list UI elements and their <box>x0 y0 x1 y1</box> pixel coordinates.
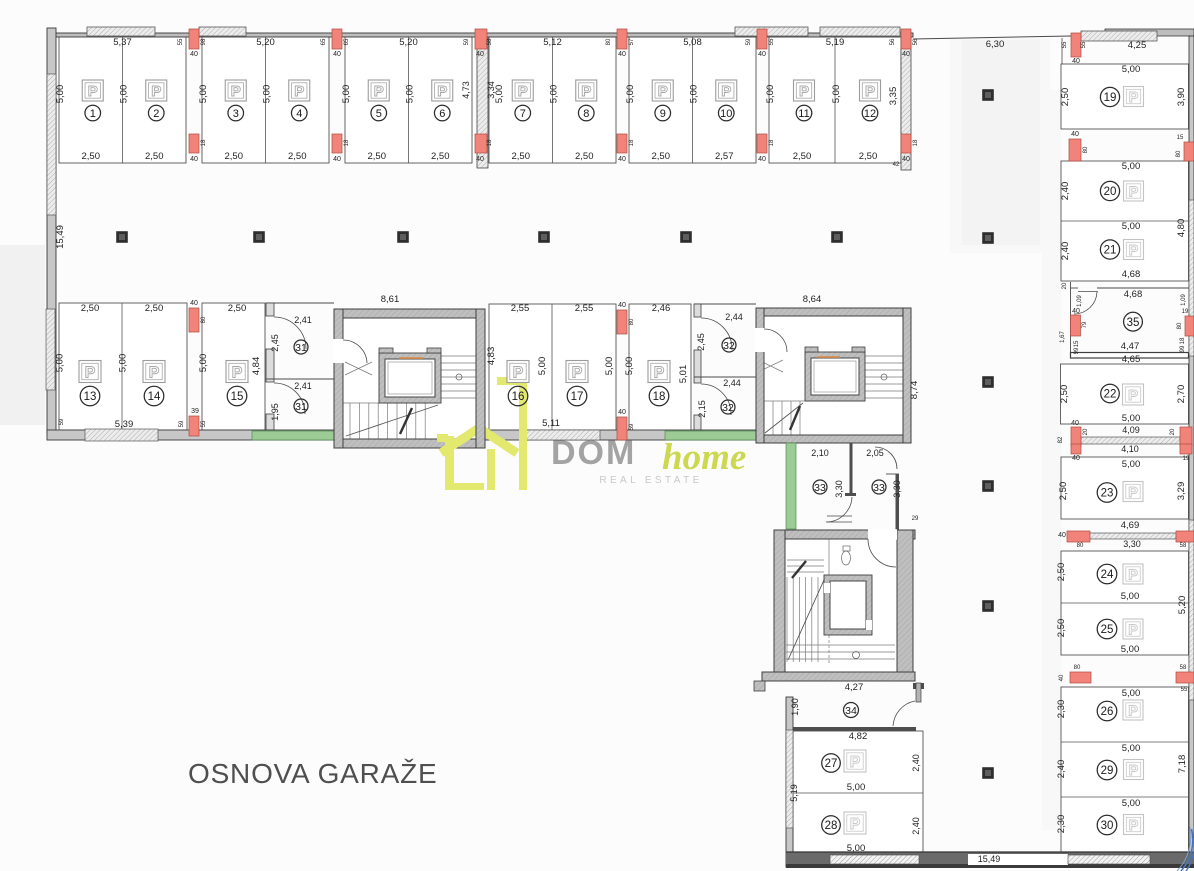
svg-text:4,10: 4,10 <box>1121 444 1139 454</box>
svg-text:55: 55 <box>1181 687 1188 693</box>
svg-text:5,37: 5,37 <box>113 37 132 48</box>
svg-text:4,80: 4,80 <box>1176 219 1187 238</box>
svg-text:P: P <box>1128 567 1138 583</box>
svg-text:P: P <box>85 364 96 381</box>
svg-text:56: 56 <box>890 38 896 45</box>
svg-text:9: 9 <box>660 108 666 120</box>
svg-text:2,50: 2,50 <box>431 151 450 162</box>
svg-text:2: 2 <box>153 108 159 120</box>
svg-text:2,45: 2,45 <box>696 333 706 351</box>
svg-text:2,50: 2,50 <box>512 151 531 162</box>
svg-text:26: 26 <box>1101 706 1114 718</box>
svg-text:12: 12 <box>864 108 876 120</box>
svg-text:4,27: 4,27 <box>845 682 864 693</box>
svg-text:5,00: 5,00 <box>847 782 866 793</box>
svg-text:6: 6 <box>439 108 445 120</box>
svg-text:20: 20 <box>1062 282 1068 289</box>
svg-text:P: P <box>850 754 861 771</box>
svg-text:P: P <box>654 364 665 381</box>
svg-text:2,41: 2,41 <box>294 381 312 391</box>
svg-text:3,90: 3,90 <box>1176 88 1187 107</box>
svg-text:55: 55 <box>1062 41 1068 48</box>
svg-text:1,95: 1,95 <box>270 403 280 421</box>
svg-text:5,00: 5,00 <box>847 843 866 854</box>
svg-text:5,00: 5,00 <box>341 85 352 104</box>
svg-text:2,50: 2,50 <box>793 151 812 162</box>
svg-text:P: P <box>518 83 528 100</box>
svg-text:24: 24 <box>1101 569 1114 581</box>
svg-text:3,30: 3,30 <box>834 480 844 498</box>
svg-text:2,50: 2,50 <box>652 151 671 162</box>
svg-text:2,40: 2,40 <box>911 817 921 835</box>
svg-text:40: 40 <box>190 156 198 163</box>
svg-text:55: 55 <box>769 38 775 45</box>
svg-text:2,50: 2,50 <box>228 303 247 314</box>
svg-text:15: 15 <box>231 391 244 403</box>
svg-text:5,00: 5,00 <box>405 85 416 104</box>
svg-text:55: 55 <box>201 420 207 427</box>
svg-text:5,00: 5,00 <box>1122 413 1141 424</box>
svg-text:80: 80 <box>1176 150 1182 157</box>
svg-text:40: 40 <box>1071 420 1079 427</box>
svg-text:40: 40 <box>902 51 910 58</box>
svg-text:5,00: 5,00 <box>198 85 209 104</box>
svg-text:80: 80 <box>629 318 635 325</box>
svg-text:5,00: 5,00 <box>1121 591 1140 602</box>
svg-text:P: P <box>721 83 731 100</box>
svg-text:17: 17 <box>571 391 584 403</box>
svg-text:5,00: 5,00 <box>831 85 842 104</box>
svg-text:40: 40 <box>333 156 341 163</box>
svg-text:2,50: 2,50 <box>1056 619 1067 638</box>
svg-text:56: 56 <box>913 38 919 45</box>
svg-text:5,00: 5,00 <box>765 85 776 104</box>
svg-text:32: 32 <box>722 402 734 414</box>
svg-text:40: 40 <box>190 51 198 58</box>
svg-text:P: P <box>437 83 447 100</box>
svg-text:4,68: 4,68 <box>1122 269 1141 280</box>
svg-text:5,00: 5,00 <box>604 357 615 376</box>
svg-text:4: 4 <box>296 108 302 120</box>
svg-text:13: 13 <box>84 391 97 403</box>
svg-text:5,39: 5,39 <box>115 419 134 430</box>
svg-text:2,05: 2,05 <box>866 448 884 458</box>
svg-text:5,00: 5,00 <box>625 85 636 104</box>
svg-text:55: 55 <box>178 38 184 45</box>
svg-text:5,00: 5,00 <box>1122 798 1141 809</box>
svg-text:5,00: 5,00 <box>1122 221 1141 232</box>
svg-text:2,55: 2,55 <box>575 303 594 314</box>
svg-text:P: P <box>1129 184 1139 200</box>
svg-text:4,84: 4,84 <box>251 357 262 376</box>
svg-text:P: P <box>1128 622 1138 638</box>
svg-text:29: 29 <box>1101 765 1114 777</box>
svg-text:2,57: 2,57 <box>715 151 734 162</box>
svg-text:5,00: 5,00 <box>1122 688 1141 699</box>
svg-text:2,50: 2,50 <box>225 151 244 162</box>
svg-text:2,70: 2,70 <box>1176 385 1187 404</box>
svg-text:5,00: 5,00 <box>118 354 129 373</box>
svg-text:27: 27 <box>825 758 838 770</box>
svg-text:18: 18 <box>1180 337 1186 344</box>
svg-text:P: P <box>1128 387 1138 404</box>
svg-text:31: 31 <box>295 342 307 354</box>
svg-text:5,01: 5,01 <box>678 365 689 384</box>
svg-text:28: 28 <box>825 820 838 832</box>
svg-text:2,50: 2,50 <box>82 151 101 162</box>
svg-text:7,18: 7,18 <box>1177 755 1188 774</box>
svg-text:80: 80 <box>606 38 612 45</box>
svg-text:40: 40 <box>618 51 626 58</box>
svg-text:15: 15 <box>1074 340 1080 347</box>
svg-text:P: P <box>1129 763 1139 779</box>
svg-text:79: 79 <box>1082 321 1088 328</box>
svg-text:2,50: 2,50 <box>145 151 164 162</box>
svg-text:32: 32 <box>723 340 735 352</box>
svg-text:5,00: 5,00 <box>262 85 273 104</box>
svg-text:5,12: 5,12 <box>543 37 562 48</box>
svg-text:5,08: 5,08 <box>683 37 702 48</box>
svg-text:15: 15 <box>1177 135 1184 141</box>
svg-text:P: P <box>1129 818 1139 834</box>
svg-text:P: P <box>1129 90 1139 106</box>
svg-text:18: 18 <box>201 139 207 146</box>
svg-text:5,00: 5,00 <box>1122 161 1141 172</box>
svg-text:3: 3 <box>233 108 239 120</box>
svg-text:58: 58 <box>1180 665 1187 671</box>
svg-text:1,09: 1,09 <box>1077 295 1083 307</box>
svg-text:4,25: 4,25 <box>1128 40 1147 51</box>
svg-text:P: P <box>581 83 591 100</box>
svg-text:98: 98 <box>201 38 207 45</box>
svg-text:18: 18 <box>769 139 775 146</box>
svg-text:35: 35 <box>1127 317 1140 329</box>
svg-text:5,00: 5,00 <box>119 85 130 104</box>
svg-text:P: P <box>232 364 243 381</box>
svg-text:18: 18 <box>913 139 919 146</box>
svg-text:40: 40 <box>758 51 766 58</box>
svg-text:5,00: 5,00 <box>1122 459 1141 470</box>
svg-text:5,00: 5,00 <box>55 85 66 104</box>
svg-text:42: 42 <box>893 162 900 168</box>
svg-text:1,90: 1,90 <box>790 698 800 716</box>
svg-text:59: 59 <box>59 418 65 425</box>
svg-text:P: P <box>799 83 809 100</box>
svg-text:58: 58 <box>1180 543 1187 549</box>
svg-text:5: 5 <box>376 108 382 120</box>
svg-text:18: 18 <box>653 391 666 403</box>
svg-text:4,82: 4,82 <box>849 731 868 742</box>
svg-text:40: 40 <box>476 51 484 58</box>
svg-text:33: 33 <box>873 482 885 494</box>
svg-text:31: 31 <box>295 401 307 413</box>
svg-text:REAL ESTATE: REAL ESTATE <box>599 475 702 486</box>
svg-text:2,50: 2,50 <box>1059 385 1070 404</box>
svg-text:15,49: 15,49 <box>55 225 66 249</box>
svg-text:1: 1 <box>90 108 96 120</box>
svg-text:4,65: 4,65 <box>1122 354 1141 365</box>
svg-text:P: P <box>294 83 304 100</box>
svg-text:5,00: 5,00 <box>198 354 209 373</box>
svg-text:23: 23 <box>1101 488 1114 500</box>
svg-text:25: 25 <box>1101 624 1114 636</box>
svg-text:P: P <box>151 83 161 100</box>
svg-text:40: 40 <box>1072 455 1080 462</box>
svg-text:2,44: 2,44 <box>725 312 743 322</box>
svg-text:8: 8 <box>583 108 589 120</box>
svg-text:5,00: 5,00 <box>624 357 635 376</box>
svg-text:22: 22 <box>1104 389 1117 401</box>
svg-text:5,20: 5,20 <box>1177 596 1188 615</box>
svg-text:P: P <box>88 83 98 100</box>
svg-text:OSNOVA GARAŽE: OSNOVA GARAŽE <box>188 758 438 789</box>
svg-text:59: 59 <box>746 38 752 45</box>
svg-text:59: 59 <box>179 420 185 427</box>
svg-text:40: 40 <box>1059 674 1065 681</box>
svg-text:P: P <box>658 83 668 100</box>
svg-text:2,40: 2,40 <box>1056 760 1067 779</box>
svg-text:80: 80 <box>1177 322 1183 329</box>
svg-text:2,50: 2,50 <box>81 303 100 314</box>
svg-text:18: 18 <box>629 139 635 146</box>
svg-text:3,30: 3,30 <box>892 480 902 498</box>
svg-text:2,50: 2,50 <box>145 303 164 314</box>
svg-text:99: 99 <box>1180 345 1186 352</box>
svg-text:40: 40 <box>618 409 626 416</box>
svg-text:2,10: 2,10 <box>811 448 829 458</box>
svg-text:2,50: 2,50 <box>859 151 878 162</box>
svg-text:10: 10 <box>720 108 732 120</box>
svg-text:80: 80 <box>1074 665 1081 671</box>
svg-text:2,30: 2,30 <box>1056 700 1067 719</box>
svg-text:18: 18 <box>487 139 493 146</box>
svg-text:5,20: 5,20 <box>256 37 275 48</box>
svg-text:30: 30 <box>1101 820 1114 832</box>
svg-text:2,50: 2,50 <box>575 151 594 162</box>
svg-text:5,00: 5,00 <box>1121 644 1140 655</box>
svg-text:40: 40 <box>476 156 484 163</box>
svg-text:P: P <box>850 816 861 833</box>
svg-text:2,41: 2,41 <box>294 315 312 325</box>
svg-text:3,35: 3,35 <box>888 87 899 106</box>
svg-text:59: 59 <box>629 423 635 430</box>
svg-text:20: 20 <box>1170 428 1176 435</box>
svg-text:4,68: 4,68 <box>1124 289 1143 300</box>
svg-text:2,44: 2,44 <box>723 378 741 388</box>
svg-text:4,83: 4,83 <box>486 347 497 366</box>
svg-text:20: 20 <box>1083 428 1089 435</box>
svg-text:40: 40 <box>758 156 766 163</box>
svg-text:40: 40 <box>1071 131 1079 138</box>
svg-text:2,50: 2,50 <box>368 151 387 162</box>
svg-text:40: 40 <box>333 51 341 58</box>
svg-text:8,64: 8,64 <box>803 294 822 305</box>
svg-text:80: 80 <box>1077 543 1084 549</box>
svg-text:5,00: 5,00 <box>1122 743 1141 754</box>
svg-text:11: 11 <box>798 108 809 120</box>
svg-text:40: 40 <box>618 302 626 309</box>
svg-text:80: 80 <box>201 316 207 323</box>
svg-text:40: 40 <box>902 156 910 163</box>
svg-text:P: P <box>572 364 583 381</box>
svg-text:4,69: 4,69 <box>1121 520 1140 531</box>
svg-text:80: 80 <box>1083 146 1089 153</box>
svg-text:18: 18 <box>344 139 350 146</box>
svg-text:2,50: 2,50 <box>1058 482 1069 501</box>
svg-text:99: 99 <box>1074 347 1080 354</box>
svg-text:19: 19 <box>1183 456 1190 462</box>
svg-text:2,50: 2,50 <box>1056 563 1067 582</box>
svg-text:5,00: 5,00 <box>537 357 548 376</box>
svg-text:P: P <box>374 83 384 100</box>
svg-text:40: 40 <box>190 300 198 307</box>
svg-text:home: home <box>662 437 746 478</box>
svg-text:5,00: 5,00 <box>1122 64 1141 75</box>
svg-text:2,40: 2,40 <box>1060 182 1071 201</box>
svg-text:5,00: 5,00 <box>55 354 66 373</box>
svg-text:P: P <box>1128 485 1138 501</box>
svg-text:4,47: 4,47 <box>1121 341 1140 352</box>
svg-text:3,34: 3,34 <box>486 81 496 99</box>
svg-text:14: 14 <box>148 391 161 403</box>
svg-text:1,67: 1,67 <box>1060 331 1066 343</box>
svg-text:P: P <box>149 364 160 381</box>
svg-text:57: 57 <box>629 38 635 45</box>
svg-text:7: 7 <box>520 108 526 120</box>
svg-text:82: 82 <box>1058 436 1064 443</box>
svg-text:19: 19 <box>1182 309 1189 315</box>
svg-text:2,30: 2,30 <box>1056 815 1067 834</box>
svg-text:33: 33 <box>814 482 826 494</box>
svg-text:P: P <box>231 83 241 100</box>
svg-text:P: P <box>1129 243 1139 259</box>
svg-text:8,74: 8,74 <box>909 381 920 400</box>
svg-text:40: 40 <box>1072 58 1080 65</box>
svg-text:65: 65 <box>344 38 350 45</box>
svg-text:2,46: 2,46 <box>652 303 671 314</box>
svg-text:8,61: 8,61 <box>381 294 400 305</box>
svg-text:59: 59 <box>464 38 470 45</box>
svg-text:3,29: 3,29 <box>1176 482 1187 501</box>
svg-text:39: 39 <box>191 408 199 415</box>
svg-text:16: 16 <box>512 391 525 403</box>
svg-text:40: 40 <box>618 156 626 163</box>
svg-text:5,19: 5,19 <box>826 37 845 48</box>
svg-text:40: 40 <box>1058 532 1066 539</box>
svg-text:20: 20 <box>1104 186 1117 198</box>
svg-text:19: 19 <box>1104 92 1117 104</box>
svg-text:5,20: 5,20 <box>399 37 418 48</box>
svg-text:1,09: 1,09 <box>1181 294 1187 306</box>
svg-text:29: 29 <box>912 516 919 522</box>
svg-text:2,40: 2,40 <box>1060 242 1071 261</box>
svg-text:P: P <box>1128 703 1138 719</box>
svg-text:P: P <box>865 83 875 100</box>
svg-text:5,00: 5,00 <box>549 85 560 104</box>
svg-text:55: 55 <box>1081 41 1087 48</box>
svg-text:6,30: 6,30 <box>986 39 1005 50</box>
svg-text:3,30: 3,30 <box>1123 539 1141 549</box>
svg-text:2,40: 2,40 <box>911 754 921 772</box>
svg-text:5,11: 5,11 <box>542 418 560 429</box>
svg-text:40: 40 <box>1072 308 1080 315</box>
svg-text:2,15: 2,15 <box>697 400 707 418</box>
svg-text:5,00: 5,00 <box>689 85 700 104</box>
svg-text:2,45: 2,45 <box>270 334 280 352</box>
svg-text:2,50: 2,50 <box>1060 88 1071 107</box>
svg-text:4,73: 4,73 <box>461 81 471 99</box>
svg-text:2,55: 2,55 <box>511 303 530 314</box>
svg-text:5,19: 5,19 <box>789 784 799 802</box>
svg-text:2,50: 2,50 <box>288 151 307 162</box>
svg-text:15,49: 15,49 <box>978 854 1001 864</box>
svg-text:21: 21 <box>1104 245 1117 257</box>
svg-text:34: 34 <box>845 705 857 717</box>
svg-text:65: 65 <box>321 38 327 45</box>
svg-text:P: P <box>513 364 524 381</box>
svg-text:58: 58 <box>487 38 493 45</box>
svg-text:4,09: 4,09 <box>1122 425 1140 435</box>
